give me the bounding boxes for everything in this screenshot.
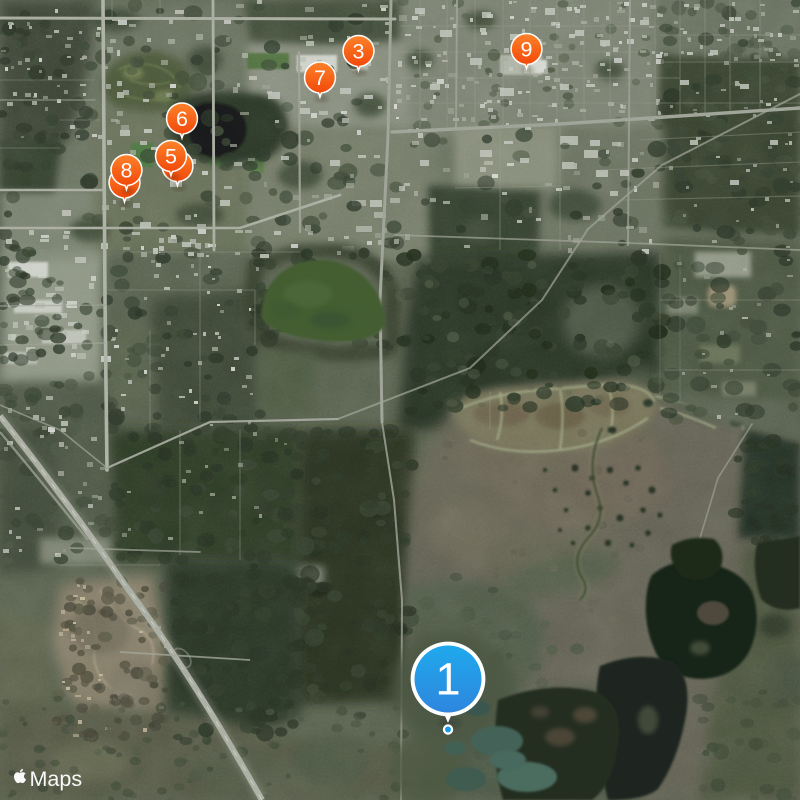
svg-text:Maps: Maps [30, 767, 83, 791]
svg-text:9: 9 [521, 37, 533, 61]
svg-text:5: 5 [165, 144, 177, 168]
svg-text:6: 6 [176, 107, 188, 131]
svg-text:3: 3 [353, 39, 365, 63]
svg-text:1: 1 [435, 654, 460, 705]
svg-text:8: 8 [121, 158, 133, 182]
svg-text:7: 7 [314, 66, 326, 90]
